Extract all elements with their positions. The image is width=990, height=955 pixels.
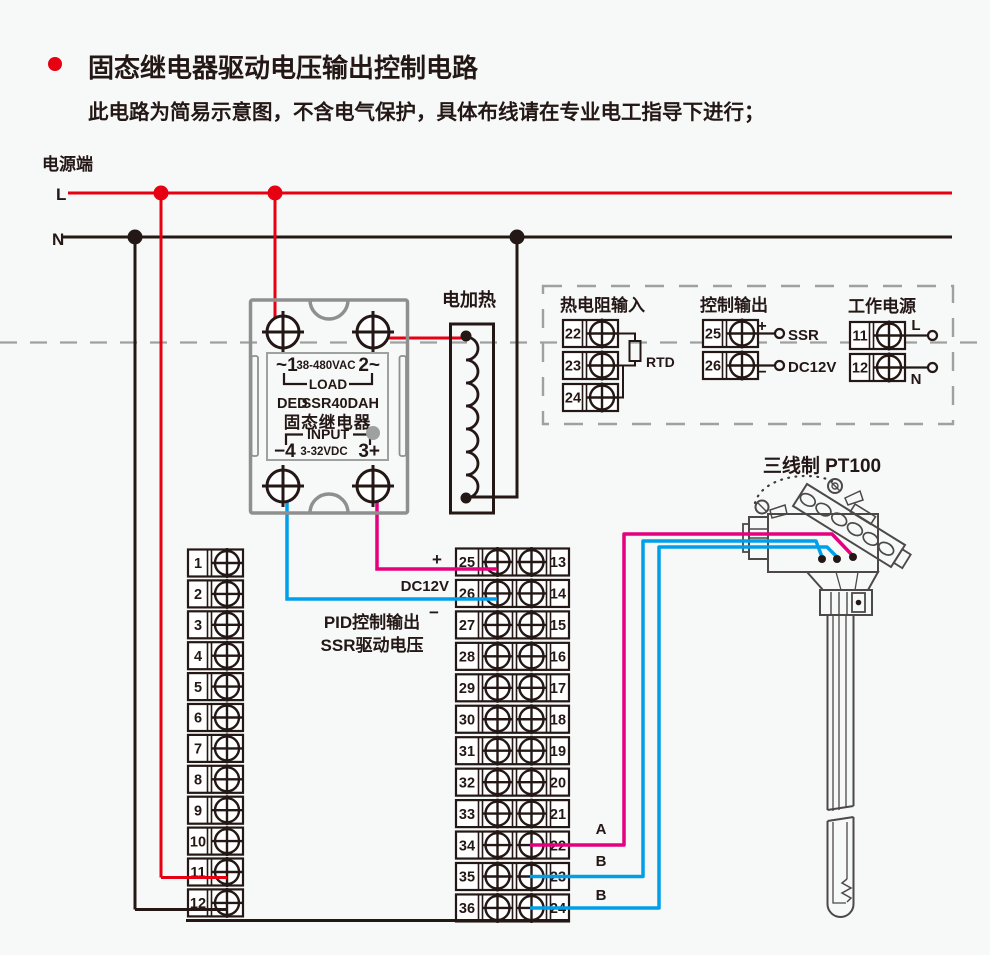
wire-label-b1: B bbox=[596, 853, 607, 870]
ssr-led-indicator bbox=[366, 426, 380, 440]
terminal-number: 24 bbox=[565, 391, 581, 407]
terminal-block-30-18: 3018 bbox=[456, 704, 569, 734]
terminal-number: 4 bbox=[194, 649, 202, 665]
live-label: L bbox=[56, 185, 66, 204]
output-group-title: 控制输出 bbox=[700, 295, 768, 315]
output-plus-label: + bbox=[757, 318, 766, 335]
terminal-block-4: 4 bbox=[188, 641, 243, 671]
wiring-diagram: 固态继电器驱动电压输出控制电路 此电路为简易示意图，不含电气保护，具体布线请在专… bbox=[0, 0, 990, 955]
page-title: 固态继电器驱动电压输出控制电路 bbox=[88, 53, 479, 83]
terminal-block-22: 22 bbox=[563, 319, 618, 349]
terminal-block-12: 12 bbox=[850, 353, 905, 383]
ssr-terminal-4-label: −4 bbox=[274, 441, 296, 462]
terminal-block-6: 6 bbox=[188, 703, 243, 733]
terminal-number: 20 bbox=[550, 775, 566, 791]
terminal-block-26-14: 2614 bbox=[456, 578, 569, 608]
terminal-block-29-17: 2917 bbox=[456, 673, 569, 703]
sensor-terminal-dot bbox=[818, 555, 826, 563]
ssr-input-label: INPUT bbox=[307, 426, 349, 442]
terminal-block-1: 1 bbox=[188, 548, 243, 578]
terminal-block-5: 5 bbox=[188, 672, 243, 702]
pid-plus-label: + bbox=[432, 550, 442, 569]
title-bullet-icon bbox=[48, 57, 62, 71]
terminal-number: 7 bbox=[194, 742, 202, 758]
power-rail-label: 电源端 bbox=[42, 154, 93, 174]
heater-label: 电加热 bbox=[442, 289, 496, 310]
wire-label-b2: B bbox=[596, 887, 607, 904]
terminal-number: 12 bbox=[852, 361, 868, 377]
terminal-number: 26 bbox=[705, 359, 721, 375]
terminal-number: 15 bbox=[550, 618, 566, 634]
terminal-block-33-21: 3321 bbox=[456, 799, 569, 829]
terminal-number: 13 bbox=[550, 555, 566, 571]
ssr-voltage-rating: 38-480VAC bbox=[296, 360, 355, 372]
output-minus-label: − bbox=[757, 364, 766, 381]
terminal-block-10: 10 bbox=[188, 826, 243, 856]
terminal-block-11: 11 bbox=[850, 321, 905, 351]
terminal-block-24: 24 bbox=[563, 383, 618, 413]
terminal-number: 31 bbox=[459, 744, 475, 760]
terminal-number: 1 bbox=[194, 556, 202, 572]
terminal-number: 10 bbox=[190, 834, 206, 850]
terminal-number: 3 bbox=[194, 618, 202, 634]
wire-label-a: A bbox=[596, 821, 607, 838]
terminal-number: 28 bbox=[459, 650, 475, 666]
heater-terminal-dot bbox=[461, 331, 472, 342]
terminal-number: 22 bbox=[565, 327, 581, 343]
wiring-diagram-page: 固态继电器驱动电压输出控制电路 此电路为简易示意图，不含电气保护，具体布线请在专… bbox=[0, 0, 990, 955]
terminal-number: 35 bbox=[459, 870, 475, 886]
terminal-number: 32 bbox=[459, 775, 475, 791]
terminal-number: 25 bbox=[705, 327, 721, 343]
terminal-number: 2 bbox=[194, 587, 202, 603]
terminal-number: 27 bbox=[459, 618, 475, 634]
terminal-block-8: 8 bbox=[188, 764, 243, 794]
output-ssr-label: SSR bbox=[788, 327, 819, 344]
supply-group-title: 工作电源 bbox=[848, 296, 916, 316]
terminal-block-26: 26 bbox=[703, 351, 758, 381]
terminal-number: 14 bbox=[550, 587, 566, 603]
terminal-number: 8 bbox=[194, 773, 202, 789]
terminal-block-28-16: 2816 bbox=[456, 641, 569, 671]
terminal-block-11: 11 bbox=[188, 857, 243, 887]
terminal-block-7: 7 bbox=[188, 733, 243, 763]
pid-minus-label: − bbox=[429, 603, 439, 622]
terminal-number: 18 bbox=[550, 712, 566, 728]
terminal-number: 23 bbox=[565, 359, 581, 375]
supply-live-label: L bbox=[911, 317, 920, 334]
neutral-label: N bbox=[52, 230, 64, 249]
pid-line1: PID控制输出 bbox=[324, 612, 420, 632]
terminal-number: 19 bbox=[550, 744, 566, 760]
ssr-terminal-2-label: 2~ bbox=[358, 355, 380, 376]
terminal-block-25-13: 2513 bbox=[456, 547, 569, 577]
rtd-label: RTD bbox=[646, 354, 675, 370]
ssr-terminal-3-label: 3+ bbox=[358, 441, 380, 462]
terminal-number: 17 bbox=[550, 681, 566, 697]
terminal-number: 11 bbox=[852, 329, 867, 345]
neck-screw-dot bbox=[856, 600, 862, 606]
terminal-block-32-20: 3220 bbox=[456, 767, 569, 797]
rtd-group-title: 热电阻输入 bbox=[560, 295, 645, 315]
terminal-block-23: 23 bbox=[563, 351, 618, 381]
terminal-number: 33 bbox=[459, 807, 475, 823]
terminal-number: 5 bbox=[194, 680, 202, 696]
ssr-model: SSR40DAH bbox=[302, 396, 379, 412]
terminal-block-25: 25 bbox=[703, 319, 758, 349]
terminal-block-12: 12 bbox=[188, 888, 243, 918]
terminal-number: 36 bbox=[459, 901, 475, 917]
terminal-number: 16 bbox=[550, 650, 566, 666]
sensor-terminal-dot bbox=[833, 555, 841, 563]
heater-terminal-dot bbox=[461, 493, 472, 504]
sensor-title: 三线制 PT100 bbox=[763, 454, 881, 477]
terminal-block-27-15: 2715 bbox=[456, 610, 569, 640]
terminal-number: 21 bbox=[550, 807, 566, 823]
terminal-number: 34 bbox=[459, 838, 475, 854]
supply-neutral-label: N bbox=[911, 371, 922, 388]
terminal-number: 30 bbox=[459, 712, 475, 728]
ssr-terminal-1-label: ~1 bbox=[276, 355, 298, 376]
terminal-number: 9 bbox=[194, 803, 202, 819]
sensor-terminal-dot bbox=[849, 553, 857, 561]
pid-line2: SSR驱动电压 bbox=[321, 635, 424, 655]
terminal-number: 29 bbox=[459, 681, 475, 697]
page-subtitle: 此电路为简易示意图，不含电气保护，具体布线请在专业电工指导下进行； bbox=[88, 100, 765, 124]
terminal-block-3: 3 bbox=[188, 610, 243, 640]
ssr-control-voltage: 3-32VDC bbox=[300, 446, 347, 458]
ssr-load-label: LOAD bbox=[309, 377, 347, 392]
output-dc12v-label: DC12V bbox=[788, 359, 836, 376]
terminal-block-31-19: 3119 bbox=[456, 736, 569, 766]
terminal-block-9: 9 bbox=[188, 795, 243, 825]
terminal-block-2: 2 bbox=[188, 579, 243, 609]
pid-dc12v-label: DC12V bbox=[401, 578, 449, 595]
terminal-number: 6 bbox=[194, 711, 202, 727]
